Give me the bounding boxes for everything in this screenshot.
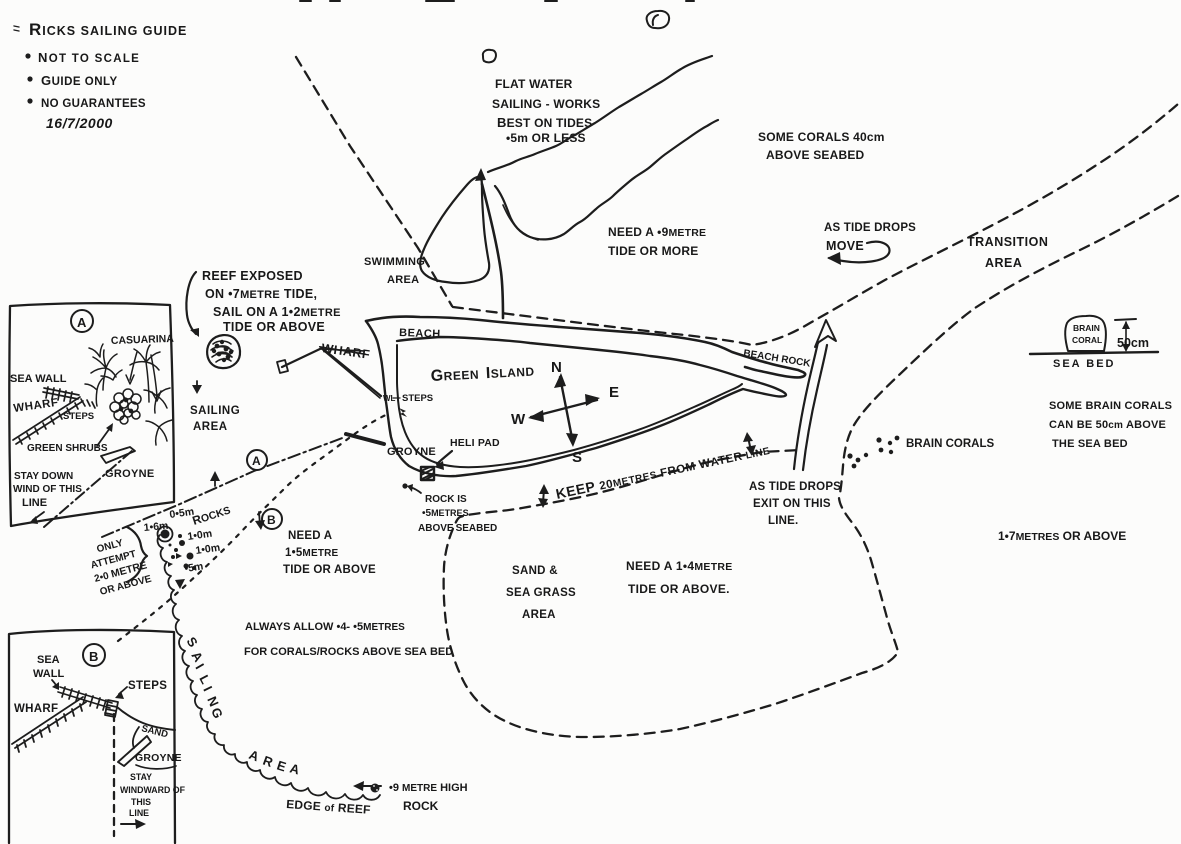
svg-text:TIDE OR ABOVE: TIDE OR ABOVE — [283, 564, 376, 576]
svg-text:CAN BE 50cm ABOVE: CAN BE 50cm ABOVE — [1049, 419, 1166, 431]
svg-text:WHARF: WHARF — [13, 397, 60, 415]
svg-text:50cm: 50cm — [1117, 336, 1149, 350]
svg-text:AREA: AREA — [985, 256, 1022, 270]
svg-text:•5METRES: •5METRES — [422, 508, 469, 519]
svg-text:LINE: LINE — [129, 808, 149, 818]
svg-text:BEACH: BEACH — [399, 327, 441, 340]
svg-text:FLAT WATER: FLAT WATER — [495, 77, 573, 91]
svg-text:NO GUARANTEES: NO GUARANTEES — [41, 98, 146, 110]
svg-text:TIDE OR ABOVE.: TIDE OR ABOVE. — [628, 582, 730, 596]
svg-text:MOVE: MOVE — [826, 239, 864, 253]
svg-text:I: I — [200, 684, 215, 694]
svg-text:LINE.: LINE. — [768, 515, 798, 527]
svg-text:AREA: AREA — [193, 421, 228, 433]
svg-text:S: S — [572, 449, 582, 466]
svg-text:ON •7METRE TIDE,: ON •7METRE TIDE, — [205, 287, 317, 301]
svg-text:SOME BRAIN CORALS: SOME BRAIN CORALS — [1049, 400, 1172, 412]
svg-text:NOT TO SCALE: NOT TO SCALE — [38, 50, 140, 65]
svg-text:WIND OF THIS: WIND OF THIS — [13, 484, 82, 495]
svg-text:NEED A: NEED A — [288, 530, 332, 542]
svg-text:BRAIN: BRAIN — [1073, 323, 1100, 333]
svg-text:SEA: SEA — [37, 654, 60, 666]
svg-text:B: B — [89, 649, 98, 664]
svg-text:GREEN SHRUBS: GREEN SHRUBS — [27, 443, 108, 454]
svg-text:N: N — [551, 359, 562, 376]
svg-text:GROYNE: GROYNE — [105, 468, 154, 480]
svg-text:STEPS: STEPS — [63, 411, 94, 422]
svg-text:THE SEA BED: THE SEA BED — [1052, 438, 1128, 450]
svg-text:W: W — [511, 411, 526, 428]
svg-text:LINE: LINE — [22, 497, 47, 509]
svg-text:A: A — [247, 747, 262, 765]
svg-text:A: A — [252, 454, 261, 468]
svg-text:1•0m: 1•0m — [195, 542, 221, 557]
svg-text:•9 METRE HIGH: •9 METRE HIGH — [389, 782, 468, 794]
svg-text:AS TIDE DROPS: AS TIDE DROPS — [824, 222, 916, 234]
svg-text:SOME CORALS 40cm: SOME CORALS 40cm — [758, 130, 885, 144]
svg-text:TIDE OR ABOVE: TIDE OR ABOVE — [223, 320, 325, 334]
svg-text:BRAIN CORALS: BRAIN CORALS — [906, 438, 994, 450]
svg-text:GUIDE ONLY: GUIDE ONLY — [41, 73, 118, 88]
svg-text:FOR CORALS/ROCKS ABOVE SEABED: FOR CORALS/ROCKS ABOVE SEABED — [244, 646, 453, 658]
svg-text:THIS: THIS — [131, 797, 151, 807]
svg-text:SAILING: SAILING — [190, 405, 240, 417]
svg-text:AREA: AREA — [522, 609, 556, 621]
svg-text:B: B — [267, 513, 276, 527]
svg-text:ABOVESEABED: ABOVESEABED — [418, 523, 497, 534]
svg-text:1•6m: 1•6m — [143, 520, 169, 534]
svg-text:GROYNE: GROYNE — [135, 752, 182, 764]
svg-text:SAILING - WORKS: SAILING - WORKS — [492, 97, 600, 111]
svg-text:•5m: •5m — [184, 560, 204, 575]
svg-text:AREA: AREA — [387, 274, 419, 286]
svg-text:R: R — [261, 753, 276, 771]
svg-text:REEF EXPOSED: REEF EXPOSED — [202, 269, 303, 283]
svg-text:1•0m: 1•0m — [187, 528, 213, 543]
svg-text:GROYNE: GROYNE — [387, 446, 436, 458]
svg-text:WALL: WALL — [33, 668, 64, 680]
svg-text:1•5METRE: 1•5METRE — [285, 547, 339, 559]
svg-text:ROCKS: ROCKS — [191, 502, 232, 527]
svg-text:E: E — [275, 758, 288, 775]
svg-text:CORAL: CORAL — [1072, 335, 1102, 345]
svg-text:SEA BED: SEA BED — [1053, 358, 1116, 370]
svg-text:EDGE of REEF: EDGE of REEF — [286, 797, 371, 817]
svg-text:16/7/2000: 16/7/2000 — [46, 115, 113, 131]
svg-text:•5m OR LESS: •5m OR LESS — [506, 131, 586, 145]
svg-text:1•7METRES OR ABOVE: 1•7METRES OR ABOVE — [998, 529, 1126, 543]
svg-text:SWIMMING: SWIMMING — [364, 256, 425, 268]
svg-text:WINDWARD OF: WINDWARD OF — [120, 785, 186, 795]
svg-text:NEED A 1•4METRE: NEED A 1•4METRE — [626, 559, 733, 573]
svg-text:EXIT ON THIS: EXIT ON THIS — [753, 498, 831, 510]
svg-text:STEPS: STEPS — [402, 393, 433, 404]
svg-text:AS TIDE DROPS: AS TIDE DROPS — [749, 481, 841, 493]
svg-text:ROCK IS: ROCK IS — [425, 494, 467, 505]
svg-text:NEED A •9METRE: NEED A •9METRE — [608, 225, 706, 239]
svg-text:SEA WALL: SEA WALL — [10, 373, 67, 385]
svg-text:STAY: STAY — [130, 772, 152, 782]
svg-text:TIDE OR MORE: TIDE OR MORE — [608, 244, 698, 258]
svg-text:SAIL ON A 1•2METRE: SAIL ON A 1•2METRE — [213, 305, 341, 319]
svg-text:ROCK: ROCK — [403, 799, 439, 813]
svg-text:STAY DOWN: STAY DOWN — [14, 471, 73, 482]
svg-text:E: E — [609, 384, 619, 401]
svg-text:A: A — [288, 760, 302, 777]
svg-text:ALWAYS ALLOW •4- •5METRES: ALWAYS ALLOW •4- •5METRES — [245, 621, 405, 633]
svg-text:GREEN ISLAND: GREEN ISLAND — [430, 363, 535, 385]
svg-text:SEA GRASS: SEA GRASS — [506, 587, 576, 599]
svg-text:RICKS SAILING GUIDE: RICKS SAILING GUIDE — [29, 20, 187, 39]
svg-text:ABOVE SEABED: ABOVE SEABED — [766, 148, 865, 162]
svg-text:CASUARINA: CASUARINA — [111, 333, 175, 347]
svg-text:TRANSITION: TRANSITION — [967, 235, 1048, 249]
svg-text:STEPS: STEPS — [128, 680, 167, 692]
svg-text:A: A — [77, 315, 87, 330]
svg-text:BEST ON TIDES: BEST ON TIDES — [497, 115, 592, 130]
svg-text:WHARF: WHARF — [14, 703, 58, 715]
svg-text:G: G — [208, 706, 226, 721]
svg-text:SAND &: SAND & — [512, 565, 558, 577]
svg-text:HELI PAD: HELI PAD — [450, 437, 500, 449]
svg-text:S: S — [184, 634, 201, 650]
